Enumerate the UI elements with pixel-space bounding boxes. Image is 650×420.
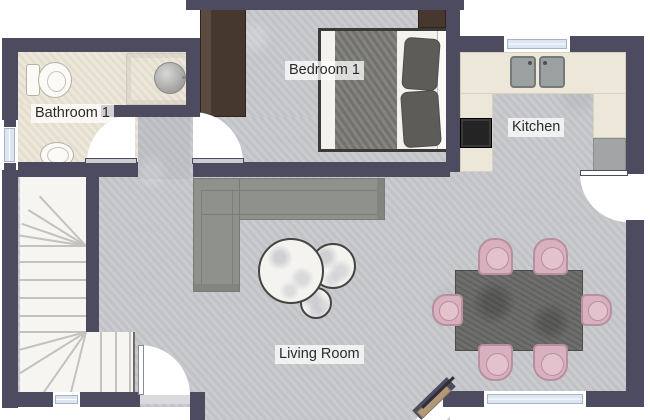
wall [446, 8, 460, 172]
stair-tread [20, 315, 86, 317]
exterior [450, 407, 626, 420]
stair-tread [129, 332, 131, 392]
staircase-treads [18, 177, 135, 392]
stair-tread [115, 332, 117, 392]
window [487, 394, 583, 404]
toilet-bowl-inner [47, 71, 66, 92]
wall [2, 38, 18, 408]
wall [80, 392, 140, 407]
closet [418, 8, 446, 28]
cooktop [460, 118, 492, 148]
kitchen-door-leaf [580, 170, 628, 176]
kitchen-counter-right [593, 93, 626, 138]
coffee-table-large [258, 238, 324, 304]
dining-chair [581, 294, 612, 326]
window [507, 39, 567, 49]
wall [193, 162, 450, 177]
exterior [18, 407, 190, 420]
wall [186, 0, 464, 10]
stair-tread [20, 279, 86, 281]
kitchen-appliance [593, 138, 626, 172]
pillow [400, 90, 442, 149]
stair-tread [20, 297, 86, 299]
wall [443, 391, 484, 407]
entry-door-threshold [140, 395, 190, 404]
room-label-bathroom: Bathroom 1 [31, 104, 114, 123]
stair-tread [100, 332, 102, 392]
stair-edge [133, 332, 135, 392]
wall [586, 391, 644, 407]
wall [101, 105, 198, 117]
kitchen-sink-basin [510, 56, 536, 88]
pillow [401, 37, 441, 91]
wall [626, 220, 644, 407]
wall [86, 170, 99, 332]
sofa-cushion-line [201, 190, 233, 286]
window-jamb [4, 120, 16, 127]
sink-drain-dot [543, 61, 547, 65]
dining-chair [478, 344, 513, 381]
chair-seat [541, 247, 564, 270]
wall [190, 392, 205, 420]
chair-seat [588, 301, 608, 321]
window [55, 395, 78, 404]
chair-seat [541, 353, 564, 376]
room-label-kitchen: Kitchen [508, 118, 564, 137]
stair-tread [18, 245, 86, 247]
stair-tread [20, 261, 86, 263]
window-jamb [4, 163, 16, 170]
wall [2, 392, 53, 407]
wall [2, 38, 198, 52]
wall [626, 36, 644, 174]
sink-drain-dot [528, 61, 532, 65]
entry-door-leaf [138, 345, 144, 395]
hallway-floor [138, 117, 190, 179]
wardrobe [200, 8, 246, 117]
double-bed [318, 28, 448, 152]
dining-table [455, 270, 583, 351]
room-label-living: Living Room [275, 345, 364, 364]
chair-seat [439, 301, 459, 321]
floor-plan: Bathroom 1 Bedroom 1 Kitchen Living Room [0, 0, 650, 420]
window [4, 128, 15, 162]
chair-seat [486, 247, 509, 270]
dining-chair [432, 294, 463, 326]
room-label-bedroom: Bedroom 1 [285, 61, 364, 80]
sofa-armrest [377, 179, 384, 219]
dining-chair [478, 238, 513, 275]
bathroom-door-leaf [85, 158, 137, 164]
dining-chair [533, 344, 568, 381]
sofa-armrest [194, 284, 239, 291]
bedroom-door-leaf [192, 158, 244, 164]
bed-duvet [335, 31, 397, 149]
wall [2, 162, 138, 177]
dining-chair [533, 238, 568, 275]
chair-seat [486, 353, 509, 376]
